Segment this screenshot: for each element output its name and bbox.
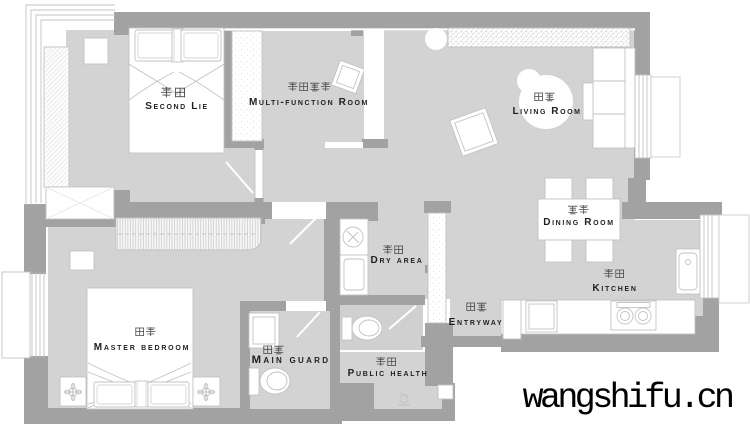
svg-text:Dry area: Dry area [371,255,424,266]
svg-text:Living Room: Living Room [513,106,582,117]
svg-text:Kitchen: Kitchen [592,283,637,294]
svg-text:Second Lie: Second Lie [145,101,208,112]
svg-text:Public health: Public health [348,368,429,379]
svg-text:Main guard: Main guard [252,354,331,366]
svg-text:Entryway: Entryway [449,317,504,328]
svg-text:Multi-function Room: Multi-function Room [249,97,369,108]
svg-text:Master bedroom: Master bedroom [94,342,191,353]
svg-text:Dining Room: Dining Room [543,217,615,228]
svg-text:wangshifu.cn: wangshifu.cn [523,378,732,418]
